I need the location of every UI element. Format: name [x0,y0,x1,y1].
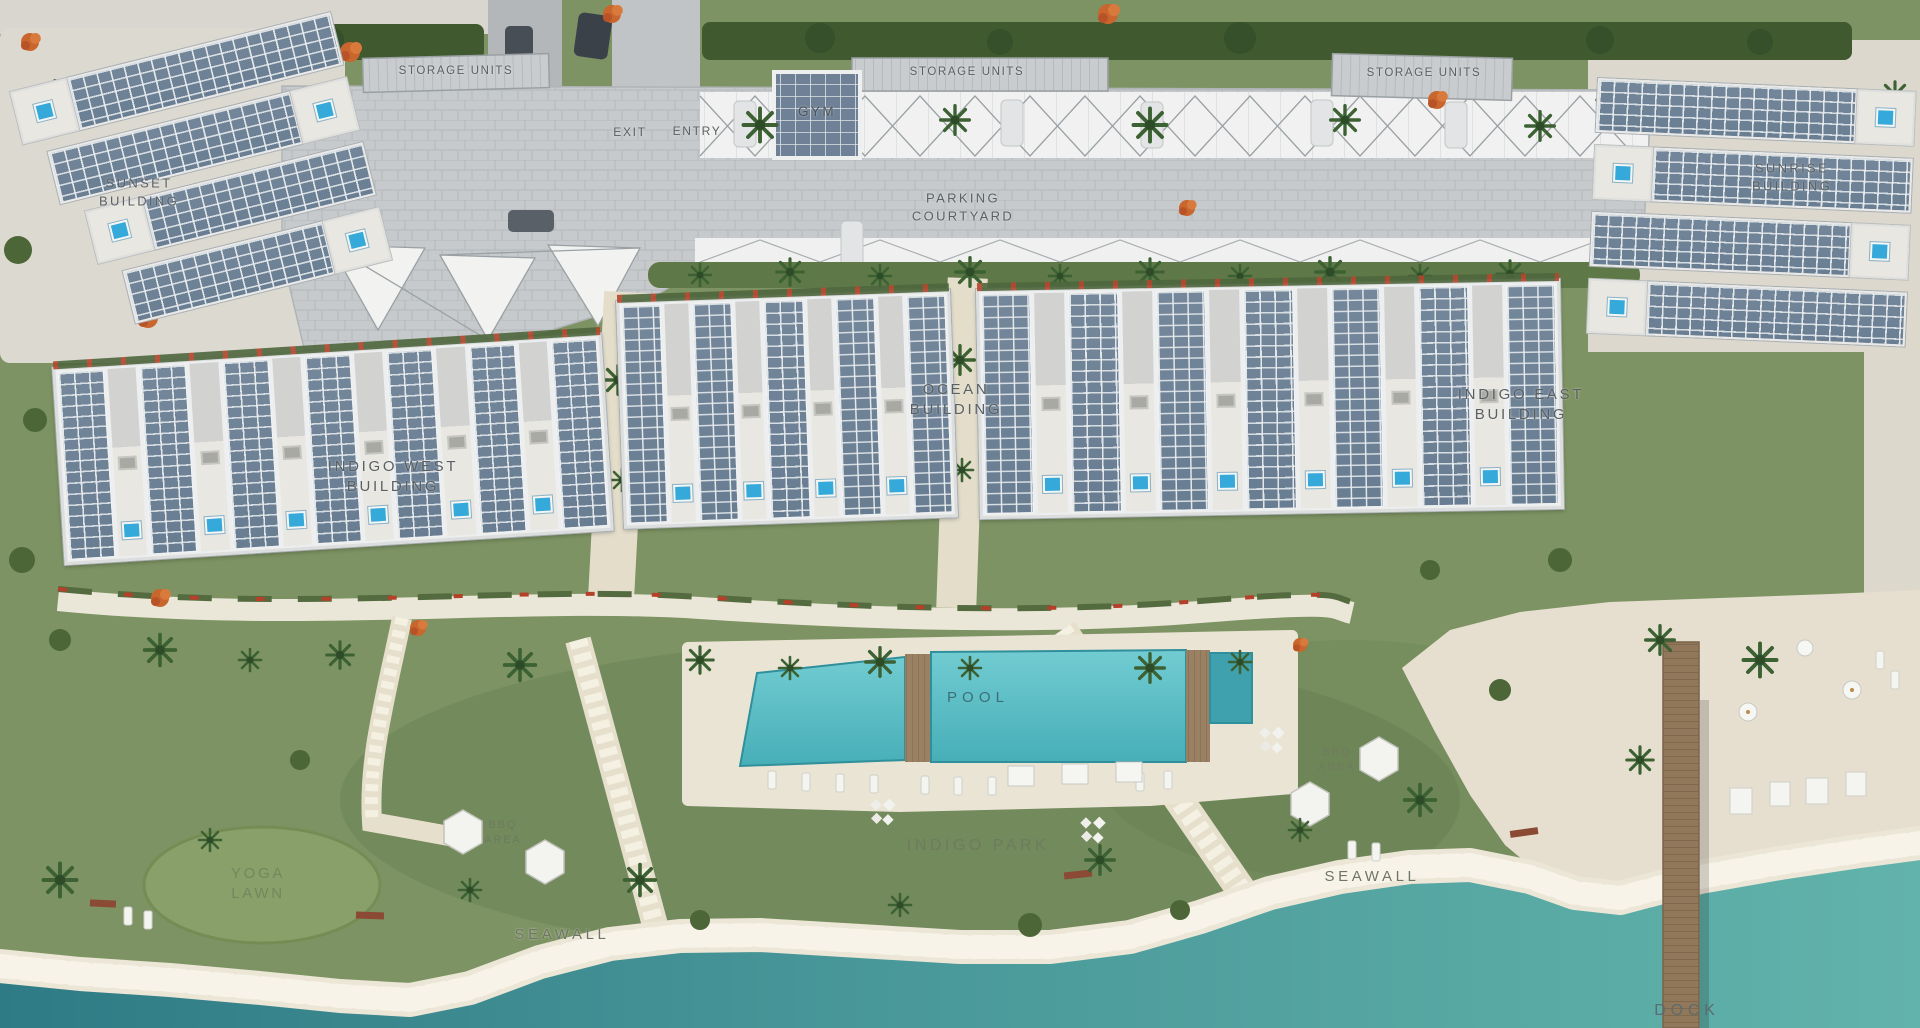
indigo-park-label: INDIGO PARK [907,835,1049,857]
unit-patio [1034,293,1068,513]
unit-roof [1645,281,1907,346]
storage-units-label-west: STORAGE UNITS [399,64,514,80]
unit-patio [807,298,839,517]
unit-roof [1069,292,1122,513]
unit-patio [1587,279,1647,335]
unit-roof [304,354,362,545]
unit-roof [1596,78,1858,143]
unit-roof [469,343,527,534]
seafront-walkway [58,589,1352,619]
seawall-label-east: SEAWALL [1325,867,1420,887]
unit-patio [1850,223,1910,279]
indigo-east-building-label: INDIGO EAST BUILDING [1431,385,1611,426]
indigo-west-building-structure [52,333,613,565]
unit-roof [1244,289,1297,510]
plunge-pool [346,229,369,251]
unit-roof [835,297,882,516]
spa-pool [1210,653,1252,723]
unit-patio [323,207,392,273]
unit-roof [1590,212,1852,277]
pool-area [688,636,1292,806]
seawall-label-west: SEAWALL [515,925,610,945]
plunge-pool [33,100,56,122]
pool-deck-bridge [905,654,931,762]
unit-patio [736,301,768,520]
yoga-lawn-label: YOGA LAWN [213,864,303,905]
sunset-building-label: SUNSET BUILDING [84,174,194,209]
gym-label: GYM [798,103,836,121]
unit-patio [290,77,359,143]
storage-units-label-center: STORAGE UNITS [910,65,1025,81]
car [508,210,554,232]
unit-patio [1384,286,1418,506]
entry-label: ENTRY [673,123,722,139]
site-plan: STORAGE UNITS STORAGE UNITS STORAGE UNIT… [0,0,1920,1028]
parking-courtyard-label: PARKING COURTYARD [896,189,1031,224]
unit-roof [58,369,116,560]
dock-label: DOCK [1654,1000,1719,1022]
unit-roof [692,302,739,521]
unit-roof [140,364,198,555]
unit-roof [1331,287,1384,508]
plunge-pool [1607,298,1627,317]
pool-deck-bridge [1186,650,1210,762]
unit-roof [551,338,609,529]
unit-roof [621,304,668,523]
unit-patio [1855,89,1915,145]
plunge-pool [108,220,131,242]
storage-units-label-east: STORAGE UNITS [1367,66,1482,82]
pool-label: POOL [947,688,1009,708]
sunrise-row [1587,279,1907,347]
sunrise-row [1590,212,1910,280]
plunge-pool [313,99,336,121]
bbq-area-label-west: BBQ AREA [471,818,535,848]
unit-patio [1297,288,1331,508]
unit-patio [1593,145,1653,201]
plunge-pool [1876,108,1896,127]
sunrise-building-cluster [1586,78,1915,360]
unit-patio [1122,291,1156,511]
unit-roof [222,359,280,550]
plunge-pool [1613,164,1633,183]
unit-patio [1209,290,1243,510]
unit-patio [664,303,696,522]
unit-roof [764,299,811,518]
canopy-band-south [695,238,1633,263]
bbq-area-label-east: BBQ AREA [1305,745,1369,775]
unit-roof [1156,290,1209,511]
indigo-west-building-label: INDIGO WEST BUILDING [298,457,488,498]
unit-roof [386,349,444,540]
plunge-pool [1870,242,1890,261]
exit-label: EXIT [613,124,646,140]
sunrise-building-label: SUNRISE BUILDING [1737,159,1847,194]
ocean-building-label: OCEAN BUILDING [896,380,1016,421]
